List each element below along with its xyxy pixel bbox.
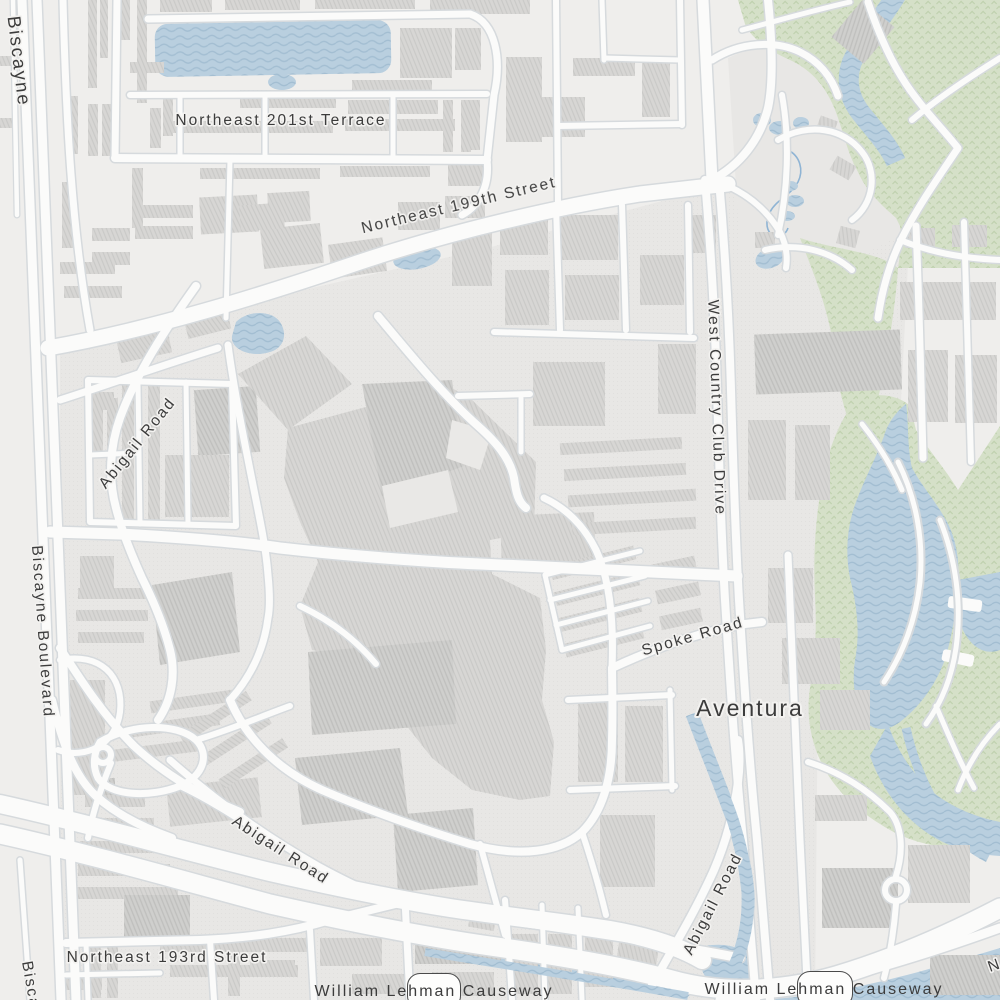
- svg-text:William Lehman Causeway: William Lehman Causeway: [705, 981, 944, 998]
- svg-text:Northeast 201st Terrace: Northeast 201st Terrace: [175, 112, 386, 129]
- svg-text:Northeast 193rd Street: Northeast 193rd Street: [67, 949, 268, 966]
- svg-text:Aventura: Aventura: [696, 695, 804, 721]
- svg-text:William Lehman Causeway: William Lehman Causeway: [315, 983, 554, 1000]
